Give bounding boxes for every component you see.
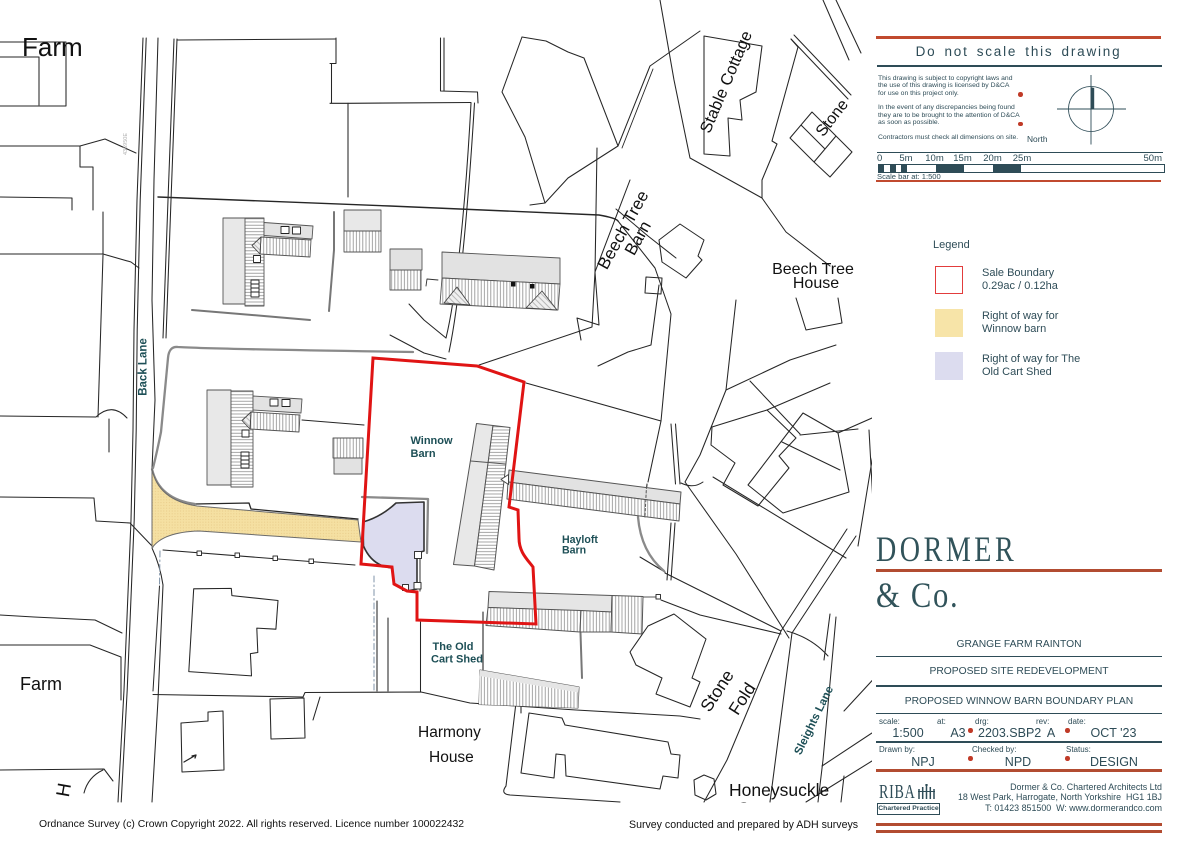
svg-text:The Old: The Old (433, 641, 474, 653)
svg-text:Honeysuckle: Honeysuckle (729, 780, 829, 800)
svg-text:Farm: Farm (20, 674, 62, 694)
svg-text:Barn: Barn (562, 545, 586, 557)
svg-text:Winnow: Winnow (411, 435, 453, 447)
svg-text:Barn: Barn (411, 448, 436, 460)
svg-text:436950E: 436950E (123, 133, 129, 155)
svg-text:H: H (53, 781, 76, 798)
svg-text:House: House (429, 749, 474, 766)
svg-text:Cottage: Cottage (737, 799, 798, 819)
svg-text:Cart Shed: Cart Shed (431, 654, 483, 666)
svg-text:Harmony: Harmony (418, 724, 481, 741)
svg-text:Back Lane: Back Lane (138, 338, 150, 396)
svg-text:Sleights Lane: Sleights Lane (793, 684, 837, 756)
svg-text:House: House (793, 275, 839, 292)
svg-text:Stable Cottage: Stable Cottage (697, 28, 756, 136)
svg-text:Farm: Farm (22, 32, 83, 62)
